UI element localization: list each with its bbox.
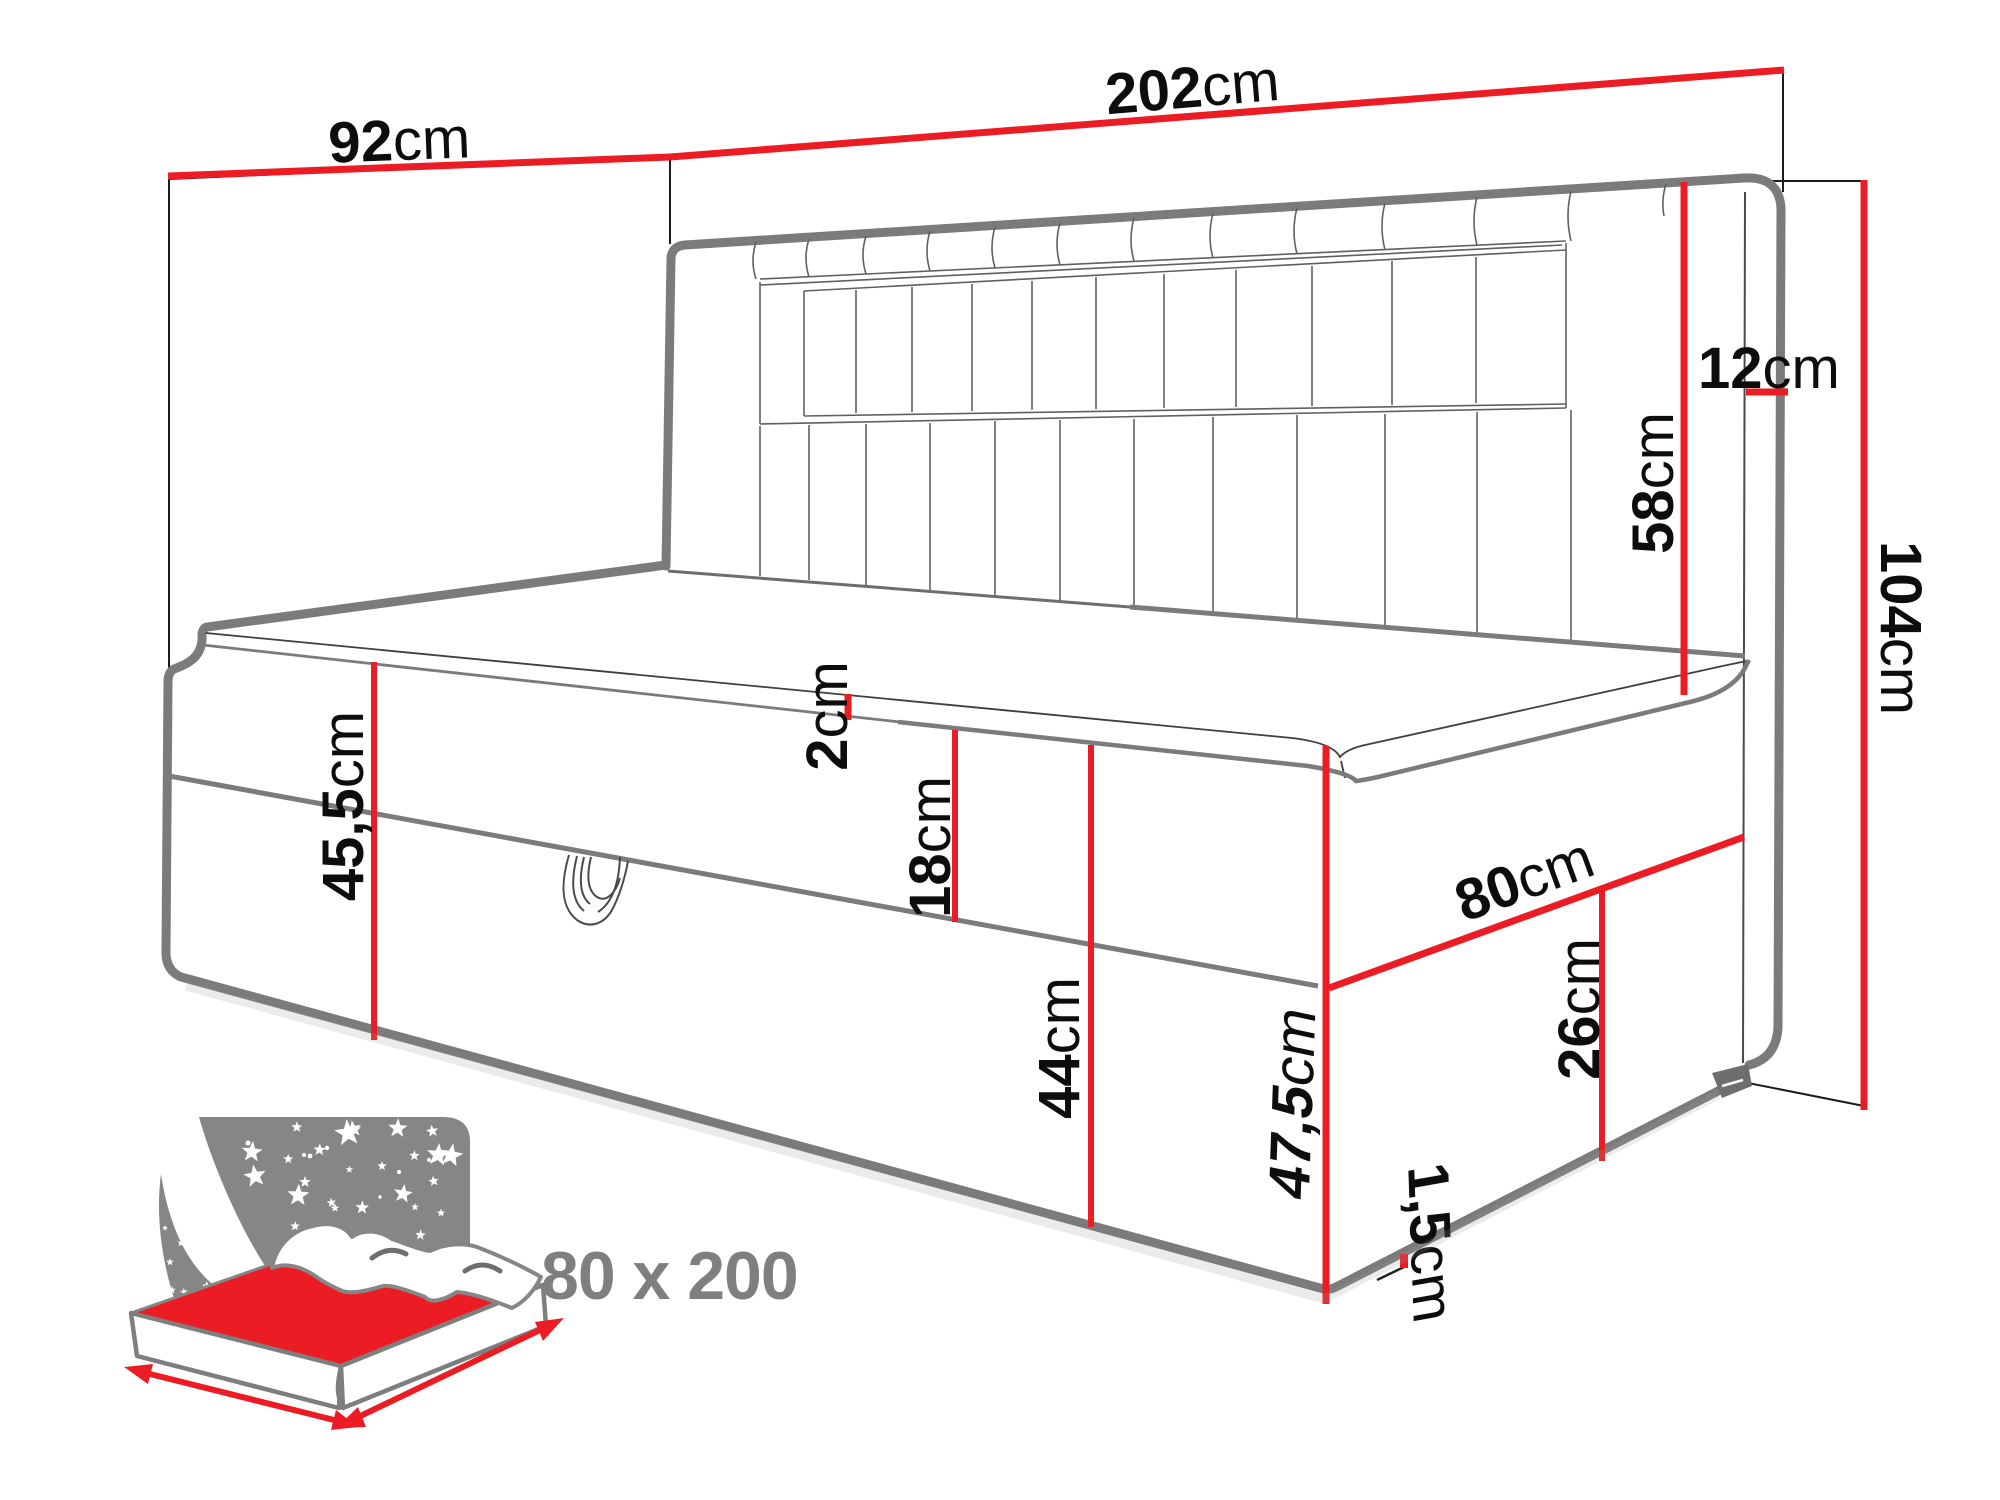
svg-text:47,5cm: 47,5cm: [1257, 1001, 1328, 1205]
svg-text:18cm: 18cm: [898, 776, 963, 918]
svg-text:92cm: 92cm: [327, 105, 471, 175]
svg-text:45,5cm: 45,5cm: [311, 711, 376, 901]
svg-text:80 x 200: 80 x 200: [541, 1238, 798, 1314]
svg-text:44cm: 44cm: [1027, 977, 1092, 1119]
svg-text:26cm: 26cm: [1547, 938, 1612, 1080]
svg-text:58cm: 58cm: [1621, 412, 1686, 554]
svg-text:2cm: 2cm: [795, 661, 860, 771]
svg-text:104cm: 104cm: [1868, 541, 1933, 715]
svg-text:12cm: 12cm: [1698, 336, 1840, 401]
